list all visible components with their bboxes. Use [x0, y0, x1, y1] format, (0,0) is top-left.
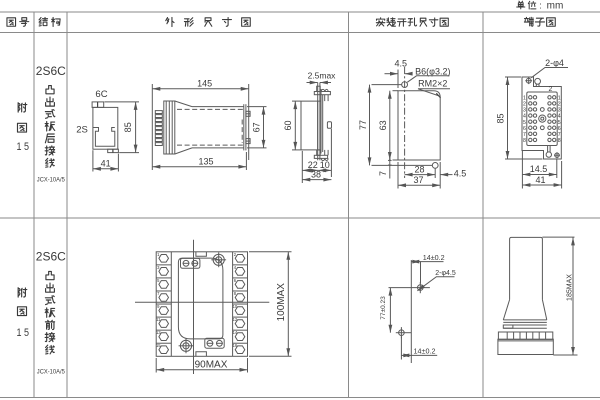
svg-text:4.5: 4.5 [394, 59, 407, 69]
svg-text:145: 145 [197, 79, 212, 89]
svg-text:12: 12 [233, 317, 238, 322]
svg-text:JCX-10A/5: JCX-10A/5 [37, 176, 65, 183]
svg-text:JCX-10A/5: JCX-10A/5 [37, 369, 65, 376]
svg-text:2-φ4.5: 2-φ4.5 [435, 270, 456, 277]
svg-text:10: 10 [233, 304, 238, 309]
svg-text:60: 60 [283, 120, 293, 130]
svg-text:63: 63 [378, 120, 388, 130]
svg-text:90MAX: 90MAX [195, 359, 228, 370]
svg-text:100MAX: 100MAX [276, 283, 287, 322]
svg-text:14±0.2: 14±0.2 [414, 347, 436, 356]
svg-text:41: 41 [535, 175, 545, 185]
svg-text:2: 2 [558, 101, 561, 107]
svg-text:9: 9 [157, 304, 160, 309]
svg-text:14.5: 14.5 [530, 164, 548, 174]
svg-text:2-φ4: 2-φ4 [545, 58, 564, 68]
svg-text:B6(φ3.2): B6(φ3.2) [415, 66, 450, 76]
svg-text:2S6C: 2S6C [36, 64, 66, 78]
svg-text:2.5max: 2.5max [308, 70, 337, 80]
svg-text:2: 2 [549, 86, 553, 93]
svg-text:1 5: 1 5 [17, 327, 30, 339]
svg-text:3: 3 [157, 265, 160, 270]
svg-text:mm: mm [547, 1, 564, 12]
svg-text:135: 135 [198, 156, 213, 166]
svg-text:5: 5 [157, 278, 160, 283]
svg-text:7: 7 [378, 171, 388, 176]
svg-text:6: 6 [523, 126, 526, 132]
svg-text:77±0.23: 77±0.23 [380, 296, 387, 320]
svg-text:11: 11 [156, 317, 161, 322]
svg-text:8: 8 [558, 138, 561, 144]
svg-text:38: 38 [311, 169, 321, 179]
svg-text:1: 1 [157, 252, 160, 257]
svg-text:28: 28 [414, 164, 424, 174]
svg-text:67: 67 [251, 122, 261, 132]
svg-text:2S6C: 2S6C [36, 249, 66, 263]
svg-text:14: 14 [233, 330, 238, 335]
svg-text::: : [539, 1, 542, 11]
svg-text:2: 2 [523, 101, 526, 107]
svg-text:37: 37 [413, 175, 423, 185]
svg-text:85: 85 [123, 122, 133, 132]
svg-text:15: 15 [156, 343, 161, 348]
svg-text:85: 85 [496, 113, 506, 123]
svg-text:6: 6 [558, 126, 561, 132]
svg-text:4.5: 4.5 [454, 168, 467, 178]
svg-text:8: 8 [523, 138, 526, 144]
svg-text:RM2×2: RM2×2 [418, 79, 447, 89]
svg-text:185MAX: 185MAX [566, 274, 573, 301]
svg-text:6C: 6C [95, 89, 107, 100]
svg-text:77: 77 [358, 120, 368, 130]
svg-text:41: 41 [101, 159, 111, 169]
svg-text:7: 7 [157, 291, 160, 296]
svg-text:1 5: 1 5 [17, 141, 30, 153]
svg-text:10: 10 [320, 160, 330, 170]
svg-text:16: 16 [233, 343, 238, 348]
svg-text:2S: 2S [76, 125, 88, 136]
svg-text:14±0.2: 14±0.2 [423, 253, 445, 262]
svg-text:13: 13 [156, 330, 161, 335]
